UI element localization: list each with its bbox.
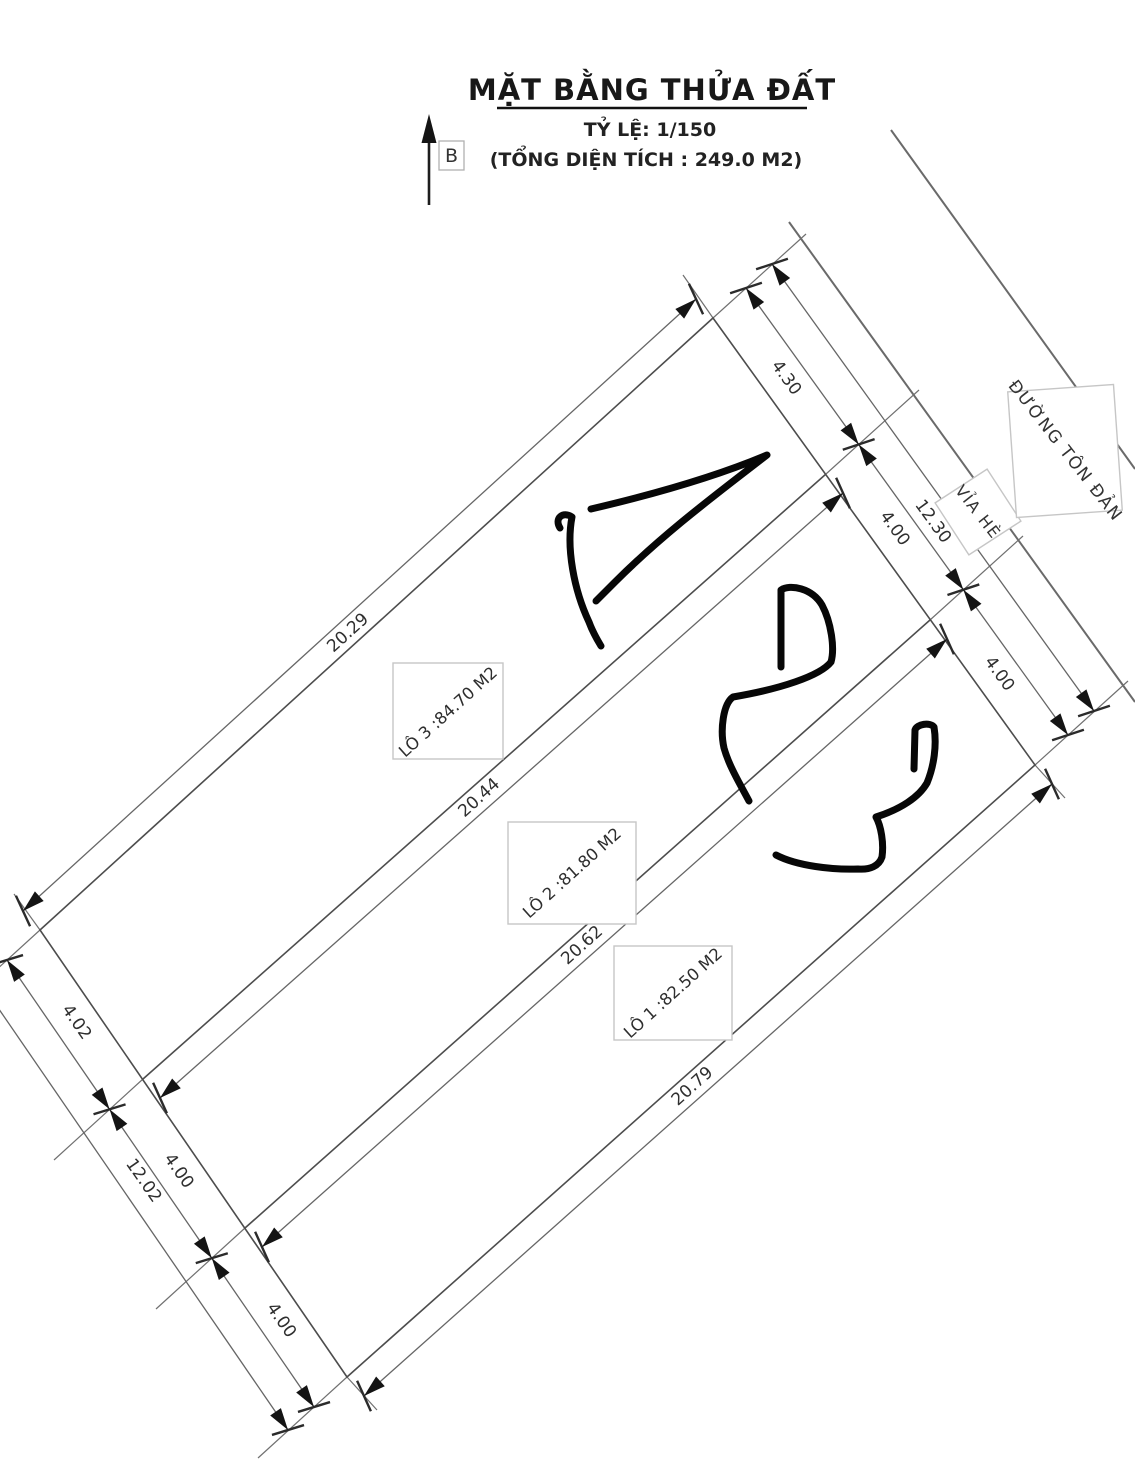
survey-plan-page: MẶT BẰNG THỬA ĐẤT TỶ LỆ: 1/150 (TỔNG DIỆ… bbox=[0, 0, 1135, 1473]
dimension-long-20-62: 20.62 bbox=[255, 624, 954, 1263]
north-arrow-icon bbox=[422, 114, 437, 143]
road-name-box: ĐƯỜNG TÔN ĐẢN bbox=[1004, 375, 1129, 526]
dimension-label: 4.00 bbox=[262, 1299, 300, 1341]
north-label: B bbox=[445, 145, 458, 167]
dimension-back-total: 12.02 bbox=[0, 978, 304, 1435]
plot-3-label-box: LÔ 3 :84.70 M2 bbox=[393, 663, 503, 761]
dimension-long-20-79: 20.79 bbox=[357, 769, 1059, 1412]
plot-2-label-box: LÔ 2 :81.80 M2 bbox=[508, 822, 636, 924]
plan-drawing: MẶT BẰNG THỬA ĐẤT TỶ LỆ: 1/150 (TỔNG DIỆ… bbox=[0, 0, 1135, 1473]
plot-1-label-box: LÔ 1 :82.50 M2 bbox=[614, 944, 732, 1042]
north-arrow: B bbox=[422, 114, 465, 205]
title-block: MẶT BẰNG THỬA ĐẤT TỶ LỆ: 1/150 (TỔNG DIỆ… bbox=[468, 69, 836, 171]
handwritten-mark-2 bbox=[722, 587, 832, 801]
dimension-back-segments: 4.024.004.00 bbox=[0, 955, 330, 1412]
total-area-label: (TỔNG DIỆN TÍCH : 249.0 M2) bbox=[490, 144, 802, 171]
page-title: MẶT BẰNG THỬA ĐẤT bbox=[468, 69, 836, 107]
handwritten-mark-3 bbox=[776, 724, 935, 869]
handwritten-mark-1 bbox=[558, 455, 767, 646]
scale-label: TỶ LỆ: 1/150 bbox=[584, 116, 716, 141]
dimension-label: 4.02 bbox=[57, 1001, 95, 1043]
dimension-label: 4.00 bbox=[160, 1150, 198, 1192]
sidewalk-label-box: VỈA HÈ bbox=[935, 469, 1021, 555]
